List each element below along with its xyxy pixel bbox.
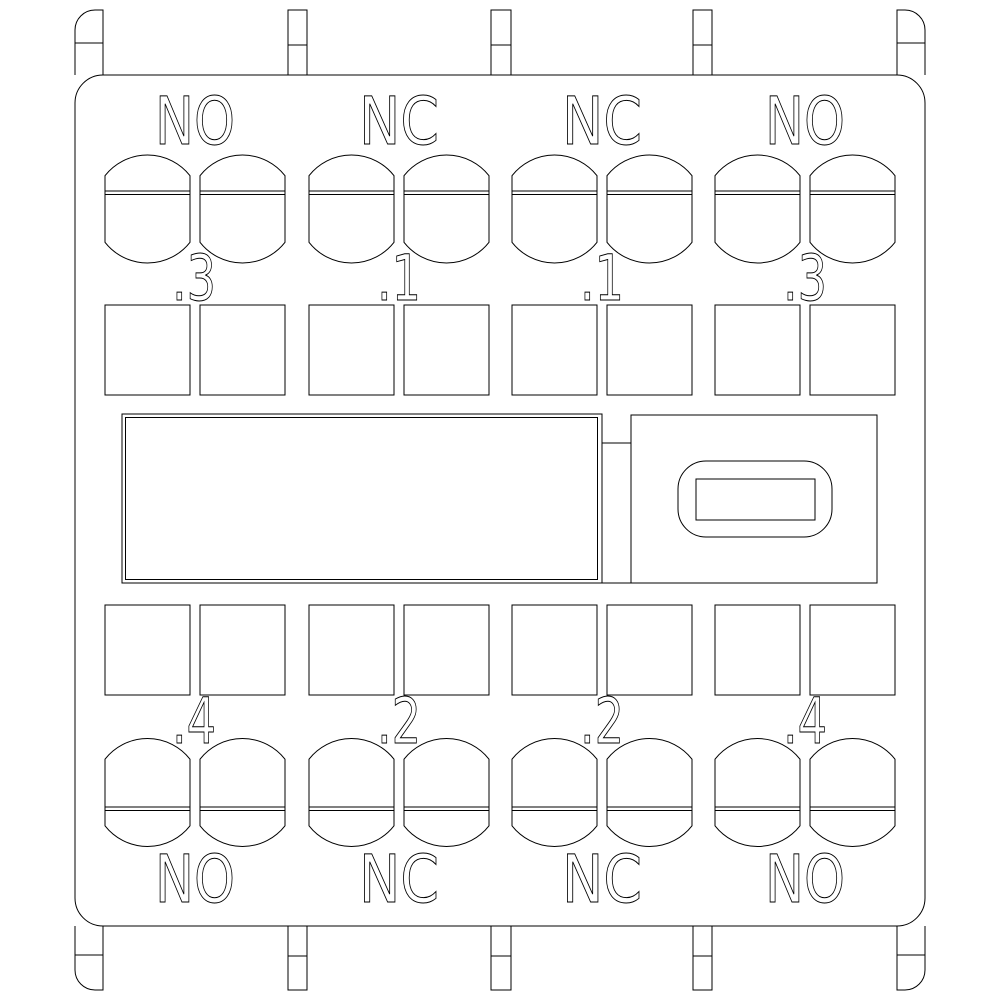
terminal-opening (105, 305, 190, 395)
terminal-openings-top (105, 305, 895, 395)
actuator-latch (631, 415, 877, 583)
screw-terminals-top (105, 155, 895, 263)
label-plate-outer (122, 414, 602, 583)
contact-type-label-bottom-2: NC (359, 841, 439, 918)
screw-slots-bottom (105, 807, 895, 811)
terminal-opening (512, 305, 597, 395)
auxiliary-contact-block-drawing: NO NC NC NO .3 .1 .1 .3 .4 .2 .2 .4 NO N… (0, 0, 1000, 1000)
terminal-opening (309, 605, 394, 695)
terminal-number-top-1: .3 (172, 242, 216, 315)
terminal-opening (200, 305, 285, 395)
terminal-number-top-4: .3 (783, 242, 827, 315)
label-plate (122, 414, 602, 583)
housing-outline (75, 75, 925, 926)
mounting-tab-bottom-right (897, 926, 925, 990)
terminal-number-bottom-1: .4 (172, 685, 216, 758)
terminal-number-top-2: .1 (377, 242, 421, 315)
terminal-opening (404, 605, 489, 695)
terminal-opening (309, 305, 394, 395)
contact-type-label-top-1: NO (155, 83, 235, 160)
mounting-tab-top-mid-3 (693, 10, 712, 75)
terminal-openings-bottom (105, 605, 895, 695)
terminal-opening (607, 605, 692, 695)
mounting-tab-top-mid-1 (288, 10, 307, 75)
contact-type-label-bottom-4: NO (765, 841, 845, 918)
contact-type-label-bottom-3: NC (562, 841, 642, 918)
mounting-tab-top-mid-2 (491, 10, 511, 75)
mounting-tab-bottom-mid-2 (491, 926, 511, 990)
terminal-opening (512, 605, 597, 695)
screw-terminals-bottom (105, 739, 895, 847)
terminal-number-bottom-2: .2 (377, 685, 421, 758)
terminal-opening (810, 305, 895, 395)
mounting-tabs-bottom (75, 926, 925, 990)
lettering: NO NC NC NO .3 .1 .1 .3 .4 .2 .2 .4 NO N… (155, 83, 845, 918)
actuator-slot-outer (678, 461, 832, 537)
terminal-opening (404, 305, 489, 395)
mounting-tab-bottom-mid-1 (288, 926, 307, 990)
terminal-opening (105, 605, 190, 695)
terminal-number-top-3: .1 (580, 242, 624, 315)
drawing-canvas: NO NC NC NO .3 .1 .1 .3 .4 .2 .2 .4 NO N… (0, 0, 1000, 1000)
actuator-housing (631, 415, 877, 583)
terminal-opening (715, 605, 800, 695)
terminal-number-bottom-4: .4 (783, 685, 827, 758)
contact-type-label-top-3: NC (562, 83, 642, 160)
screw-slots-top (105, 191, 895, 195)
contact-type-label-bottom-1: NO (155, 841, 235, 918)
mounting-tab-bottom-left (75, 926, 103, 990)
terminal-number-bottom-3: .2 (580, 685, 624, 758)
terminal-opening (715, 305, 800, 395)
actuator-slot-inner (696, 479, 815, 520)
label-plate-inner (126, 418, 598, 580)
contact-type-label-top-4: NO (765, 83, 845, 160)
mounting-tabs-top (75, 10, 925, 75)
terminal-opening (607, 305, 692, 395)
terminal-opening (810, 605, 895, 695)
contact-type-label-top-2: NC (359, 83, 439, 160)
plate-actuator-connector (602, 443, 631, 583)
mounting-tab-bottom-mid-3 (693, 926, 712, 990)
terminal-opening (200, 605, 285, 695)
